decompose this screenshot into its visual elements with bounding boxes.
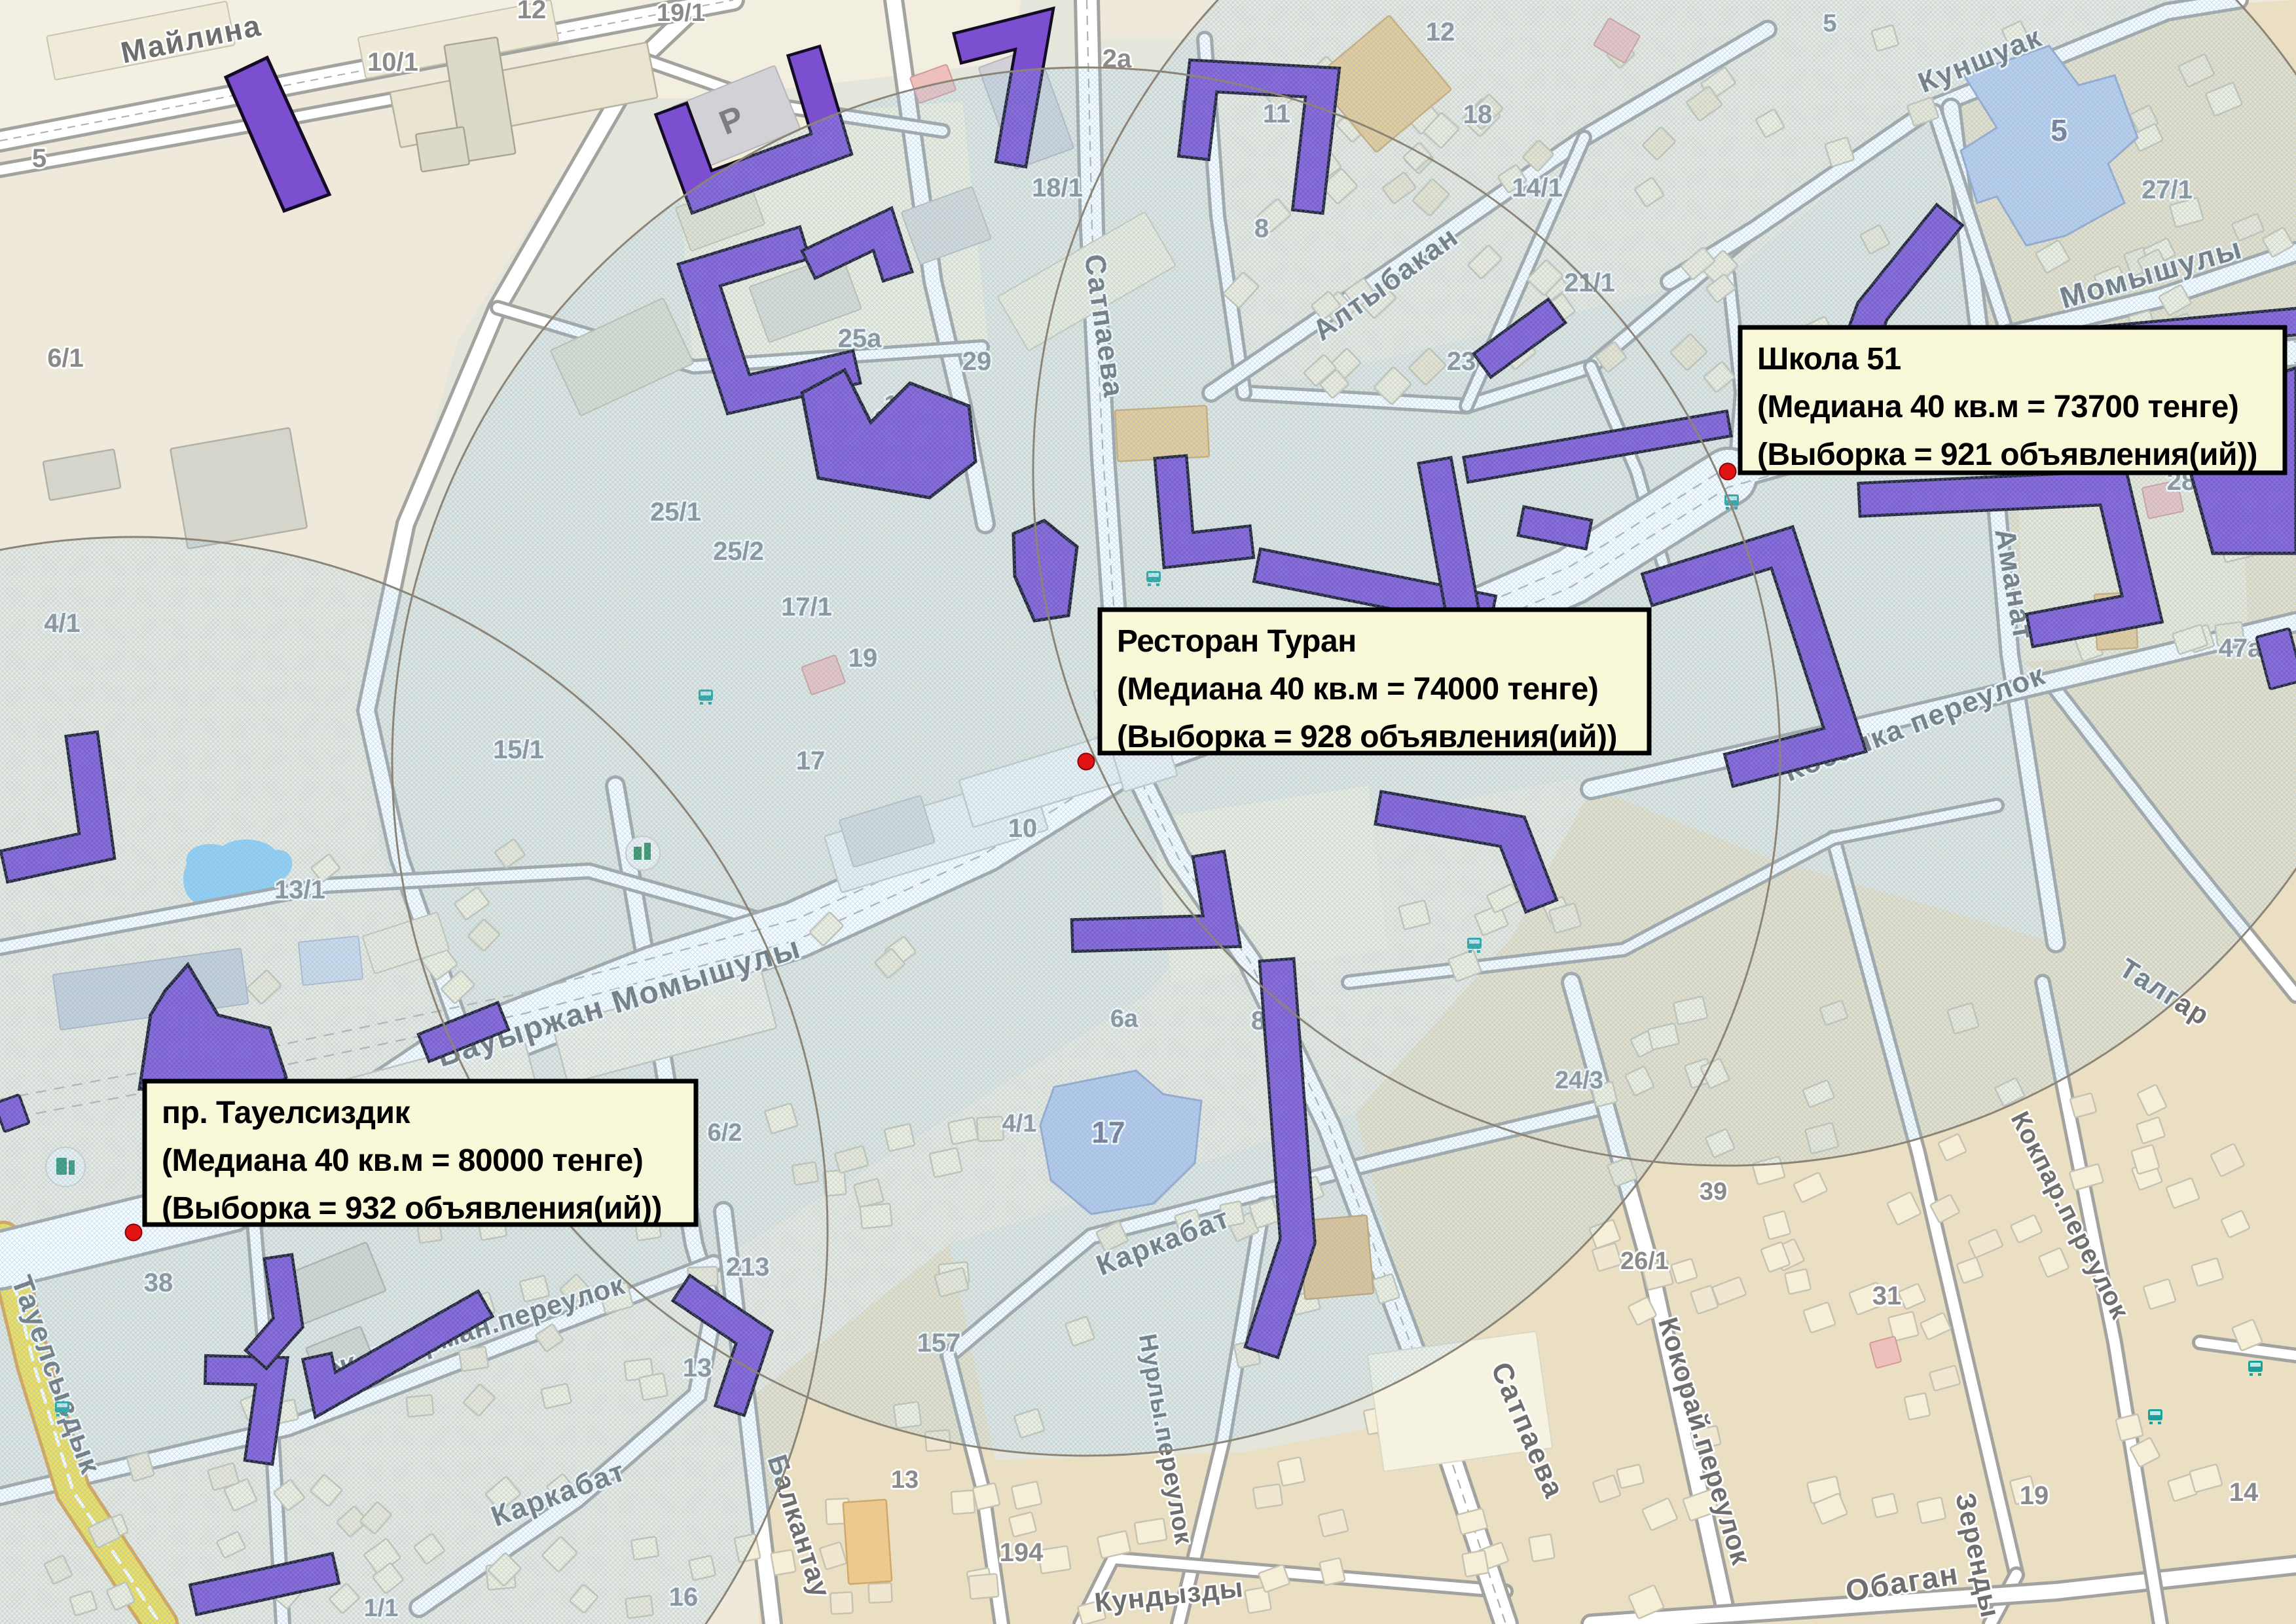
- svg-text:13: 13: [891, 1466, 919, 1494]
- svg-text:(Медиана 40 кв.м = 73700 тенге: (Медиана 40 кв.м = 73700 тенге): [1757, 390, 2238, 424]
- svg-text:31: 31: [1872, 1282, 1902, 1310]
- svg-text:19/1: 19/1: [657, 0, 705, 27]
- svg-text:12: 12: [517, 0, 547, 24]
- svg-text:19: 19: [2020, 1481, 2049, 1510]
- svg-text:26/1: 26/1: [1620, 1247, 1669, 1275]
- svg-text:10/1: 10/1: [367, 48, 418, 77]
- svg-text:(Выборка = 921 объявления(ий)): (Выборка = 921 объявления(ий)): [1757, 437, 2257, 472]
- svg-text:5: 5: [32, 144, 46, 173]
- svg-text:Ресторан Туран: Ресторан Туран: [1117, 624, 1357, 659]
- svg-text:(Медиана 40 кв.м = 80000 тенге: (Медиана 40 кв.м = 80000 тенге): [162, 1143, 643, 1178]
- svg-text:194: 194: [1000, 1538, 1044, 1567]
- svg-text:(Выборка = 928 объявления(ий)): (Выборка = 928 объявления(ий)): [1117, 720, 1617, 754]
- svg-text:Школа 51: Школа 51: [1757, 342, 1901, 377]
- svg-text:6/1: 6/1: [47, 344, 84, 373]
- svg-text:14: 14: [2229, 1478, 2259, 1507]
- svg-text:пр. Тауелсиздик: пр. Тауелсиздик: [162, 1096, 410, 1130]
- svg-text:39: 39: [1700, 1178, 1727, 1206]
- svg-text:(Выборка = 932 объявления(ий)): (Выборка = 932 объявления(ий)): [162, 1191, 662, 1226]
- svg-text:(Медиана 40 кв.м = 74000 тенге: (Медиана 40 кв.м = 74000 тенге): [1117, 672, 1598, 707]
